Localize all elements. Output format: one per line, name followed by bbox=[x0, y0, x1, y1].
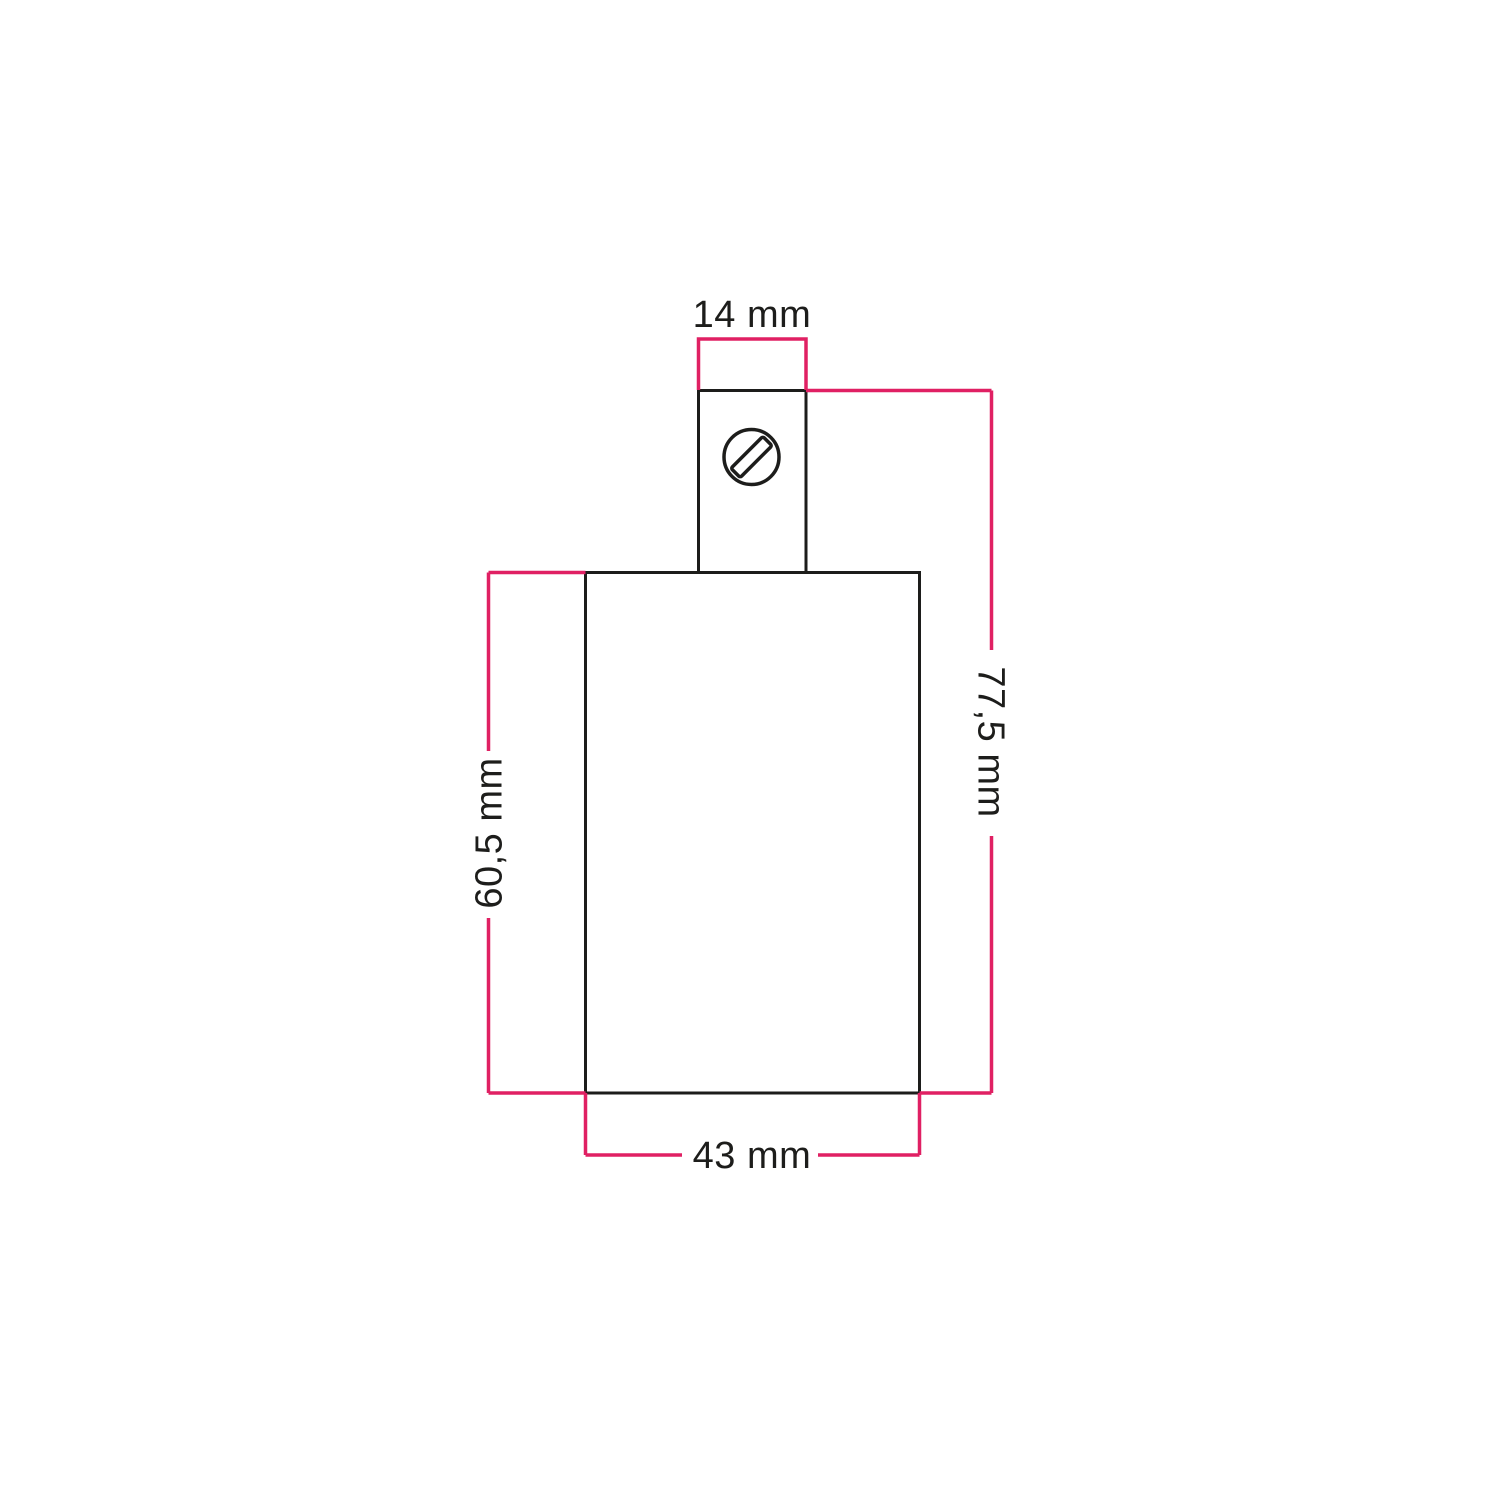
label-clamp-width: 14 mm bbox=[693, 294, 812, 336]
dimension-labels-group: 14 mm 77,5 mm 60,5 mm 43 mm bbox=[469, 294, 1012, 1177]
label-body-height: 60,5 mm bbox=[469, 757, 511, 908]
screw-slot bbox=[731, 436, 772, 477]
screw-head-icon bbox=[724, 430, 779, 485]
label-total-height: 77,5 mm bbox=[970, 666, 1012, 817]
dimension-diagram: 14 mm 77,5 mm 60,5 mm 43 mm bbox=[0, 0, 1500, 1500]
lamp-holder-body-outline bbox=[586, 573, 920, 1094]
product-outline-group bbox=[586, 391, 920, 1094]
cable-clamp-outline bbox=[699, 391, 807, 573]
dimension-line-clamp-width bbox=[699, 339, 807, 390]
dimension-line-total-height bbox=[806, 391, 992, 1094]
technical-drawing-canvas: 14 mm 77,5 mm 60,5 mm 43 mm bbox=[0, 0, 1500, 1500]
screw-head-circle bbox=[724, 430, 779, 485]
label-body-width: 43 mm bbox=[693, 1135, 812, 1177]
